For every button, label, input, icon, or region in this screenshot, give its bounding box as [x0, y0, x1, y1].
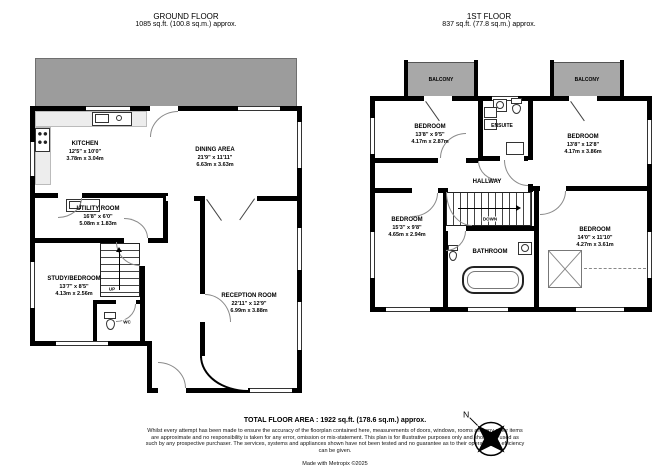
french-door-leaf-left — [206, 199, 222, 221]
first-floor-title: 1ST FLOOR — [389, 12, 589, 21]
compass-north-label: N — [463, 410, 469, 420]
room-name: BEDROOM — [411, 124, 448, 132]
ground-floor-header: GROUND FLOOR 1085 sq.ft. (100.8 sq.m.) a… — [86, 12, 286, 28]
room-dim-metric: 4.65m x 2.94m — [388, 232, 425, 239]
bed4-window-bottom — [576, 307, 624, 312]
room-label-bathroom: BATHROOM — [473, 249, 508, 257]
ensuite-door-arc — [478, 161, 500, 181]
balcony-right-wall-r — [620, 60, 624, 100]
ground-floor-title: GROUND FLOOR — [86, 12, 286, 21]
room-dim-imperial: 22'11" x 12'9" — [221, 301, 276, 308]
room-name: DINING AREA — [195, 147, 234, 155]
bed3-door-arc — [412, 193, 438, 217]
ensuite-basin — [496, 101, 504, 109]
wc-toilet-tank — [104, 312, 116, 319]
balcony-right-door-gap — [569, 96, 597, 101]
room-label-balcony-left: BALCONY — [429, 77, 454, 84]
room-name: STUDY/BEDROOM — [47, 276, 100, 284]
ff-wall-bed1-bottom — [370, 158, 438, 163]
bathtub-inner — [467, 271, 519, 289]
gf-wall-step — [147, 341, 152, 393]
kitchen-window — [86, 106, 130, 111]
bed2-window-right — [647, 120, 652, 164]
kitchen-tap — [116, 115, 122, 121]
room-label-utility: UTILITY ROOM 16'8" x 6'0" 5.08m x 1.83m — [77, 206, 120, 228]
dining-window-right — [297, 122, 302, 168]
bathroom-window-bottom — [468, 307, 508, 312]
room-label-bedroom-front-right: BEDROOM 13'8" x 12'8" 4.17m x 3.86m — [564, 134, 601, 156]
stove — [35, 128, 50, 152]
stairs-down-arrow-head — [516, 205, 521, 211]
french-doors-gap — [205, 196, 257, 201]
front-door-gap — [158, 388, 186, 393]
study-window-left — [30, 262, 35, 308]
room-dim-metric: 4.17m x 2.87m — [411, 139, 448, 146]
study-window-bottom — [56, 341, 108, 346]
stairs-up-label: UP — [108, 287, 116, 292]
room-dim-metric: 4.17m x 3.86m — [564, 149, 601, 156]
room-label-balcony-right: BALCONY — [575, 77, 600, 84]
stairs-up-arrow-line — [119, 252, 120, 290]
room-dim-imperial: 13'7" x 8'5" — [47, 284, 100, 291]
stairs-down-arrow-line — [458, 208, 516, 209]
utility-door-arc-bottom — [124, 218, 148, 238]
balcony-left-wall-r — [474, 60, 478, 100]
front-door-arc — [158, 362, 186, 388]
gf-curved-bay-wall — [200, 356, 248, 392]
gf-wall-wc-left — [93, 300, 97, 346]
first-floor-header: 1ST FLOOR 837 sq.ft. (77.8 sq.m.) approx… — [389, 12, 589, 28]
balcony-right-door-leaf — [570, 101, 585, 121]
bed4-window-right — [647, 232, 652, 278]
wc-toilet-bowl — [106, 319, 115, 330]
french-door-leaf-right — [239, 198, 255, 220]
room-dim-metric: 3.78m x 3.04m — [66, 156, 103, 163]
bed2-door-gap — [528, 160, 533, 184]
stairs-up-arrow-head — [116, 247, 122, 252]
room-label-wc: WC — [122, 320, 132, 325]
airing-cupboard — [506, 142, 524, 155]
room-name: BEDROOM — [576, 227, 613, 235]
room-label-kitchen: KITCHEN 12'5" x 10'0" 3.78m x 3.04m — [66, 141, 103, 163]
eaves-dashed-line — [584, 268, 646, 269]
bed4-door-arc — [540, 191, 566, 215]
ff-wall-bath-right — [534, 191, 539, 312]
gf-wall-utility-top — [30, 193, 168, 198]
room-dim-metric: 4.13m x 2.56m — [47, 291, 100, 298]
first-floor-area: 837 sq.ft. (77.8 sq.m.) approx. — [389, 21, 589, 28]
room-dim-imperial: 13'8" x 12'8" — [564, 142, 601, 149]
room-name: BEDROOM — [388, 217, 425, 225]
room-label-hallway: HALLWAY — [473, 179, 502, 187]
room-dim-imperial: 13'8" x 9'5" — [411, 132, 448, 139]
kitchen-sink-bowl — [95, 114, 109, 123]
terrace-area — [35, 58, 297, 110]
room-name: UTILITY ROOM — [77, 206, 120, 214]
room-name: RECEPTION ROOM — [221, 293, 276, 301]
reception-window-bottom — [250, 388, 292, 393]
room-dim-metric: 4.27m x 3.61m — [576, 242, 613, 249]
hall-opening-gap — [166, 196, 194, 201]
room-label-ensuite: ENSUITE — [491, 123, 513, 130]
stairs-down-label: DOWN — [482, 217, 498, 222]
balcony-left-wall-l — [404, 60, 408, 100]
ensuite-toilet-bowl — [512, 104, 521, 114]
ff-wall-ensuite-left — [478, 96, 483, 161]
terrace-door-arc — [150, 111, 178, 137]
gf-wall-reception-left — [200, 196, 205, 358]
bed1-door-gap — [438, 158, 466, 163]
ff-wall-bed1-stub — [466, 158, 478, 163]
dining-window-top — [238, 106, 280, 111]
room-dim-metric: 6.63m x 3.63m — [195, 162, 234, 169]
room-dim-imperial: 21'9" x 11'11" — [195, 155, 234, 162]
reception-window-right-1 — [297, 228, 302, 270]
room-label-dining: DINING AREA 21'9" x 11'11" 6.63m x 3.63m — [195, 147, 234, 169]
bathroom-basin — [521, 244, 529, 252]
ground-floor-area: 1085 sq.ft. (100.8 sq.m.) approx. — [86, 21, 286, 28]
bed2-door-arc — [504, 160, 528, 186]
floorplan-canvas: GROUND FLOOR 1085 sq.ft. (100.8 sq.m.) a… — [0, 0, 670, 471]
compass-icon: N — [462, 408, 520, 466]
room-dim-imperial: 15'3" x 9'8" — [388, 225, 425, 232]
bed3-window-left — [370, 232, 375, 278]
wardrobe — [548, 250, 582, 288]
room-dim-metric: 5.08m x 1.83m — [77, 221, 120, 228]
study-door-gap — [140, 242, 145, 266]
balcony-left-door-gap — [424, 96, 452, 101]
bed3-window-bottom — [386, 307, 430, 312]
room-name: KITCHEN — [66, 141, 103, 149]
bathroom-door-arc — [446, 231, 466, 251]
room-dim-metric: 6.99m x 3.88m — [221, 308, 276, 315]
room-label-bedroom-front-left: BEDROOM 13'8" x 9'5" 4.17m x 2.87m — [411, 124, 448, 146]
balcony-left-door-leaf — [425, 101, 440, 121]
room-label-bedroom-back-right: BEDROOM 14'0" x 11'10" 4.27m x 3.61m — [576, 227, 613, 249]
room-dim-imperial: 12'5" x 10'0" — [66, 149, 103, 156]
bed1-window-left — [370, 118, 375, 154]
bathroom-toilet-bowl — [449, 251, 457, 261]
balcony-right-wall-l — [550, 60, 554, 100]
room-name: BEDROOM — [564, 134, 601, 142]
room-label-study: STUDY/BEDROOM 13'7" x 8'5" 4.13m x 2.56m — [47, 276, 100, 298]
room-dim-imperial: 14'0" x 11'10" — [576, 235, 613, 242]
room-label-reception: RECEPTION ROOM 22'11" x 12'9" 6.99m x 3.… — [221, 293, 276, 315]
reception-window-right-2 — [297, 302, 302, 350]
room-label-bedroom-back-left: BEDROOM 15'3" x 9'8" 4.65m x 2.94m — [388, 217, 425, 239]
room-dim-imperial: 16'8" x 6'0" — [77, 214, 120, 221]
cupboard-1 — [484, 107, 497, 118]
